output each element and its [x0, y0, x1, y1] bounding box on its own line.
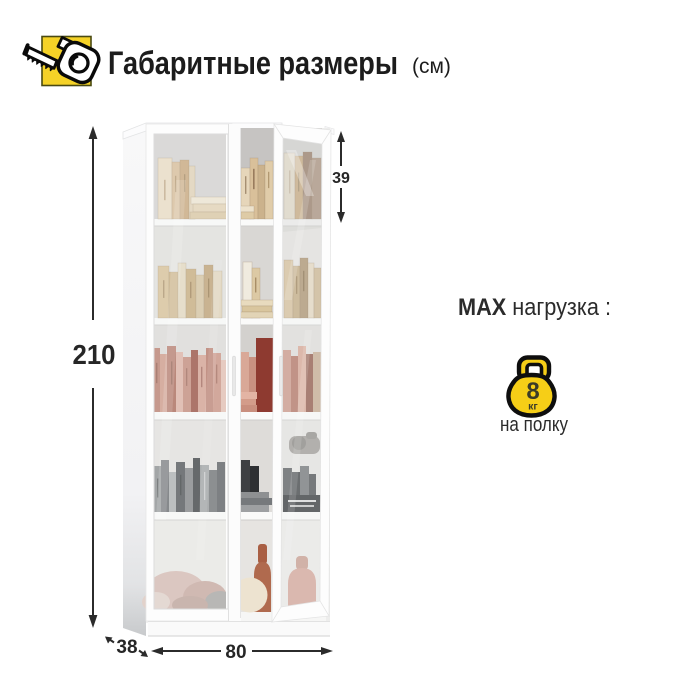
svg-text:(см): (см) [412, 55, 451, 78]
svg-text:210: 210 [73, 339, 116, 370]
svg-text:80: 80 [225, 642, 246, 663]
svg-text:MAX нагрузка :: MAX нагрузка : [458, 294, 611, 321]
svg-text:39: 39 [332, 170, 350, 187]
svg-text:Габаритные размеры: Габаритные размеры [108, 45, 398, 81]
svg-text:38: 38 [116, 637, 137, 658]
svg-text:кг: кг [528, 401, 538, 413]
svg-text:на полку: на полку [500, 414, 568, 436]
